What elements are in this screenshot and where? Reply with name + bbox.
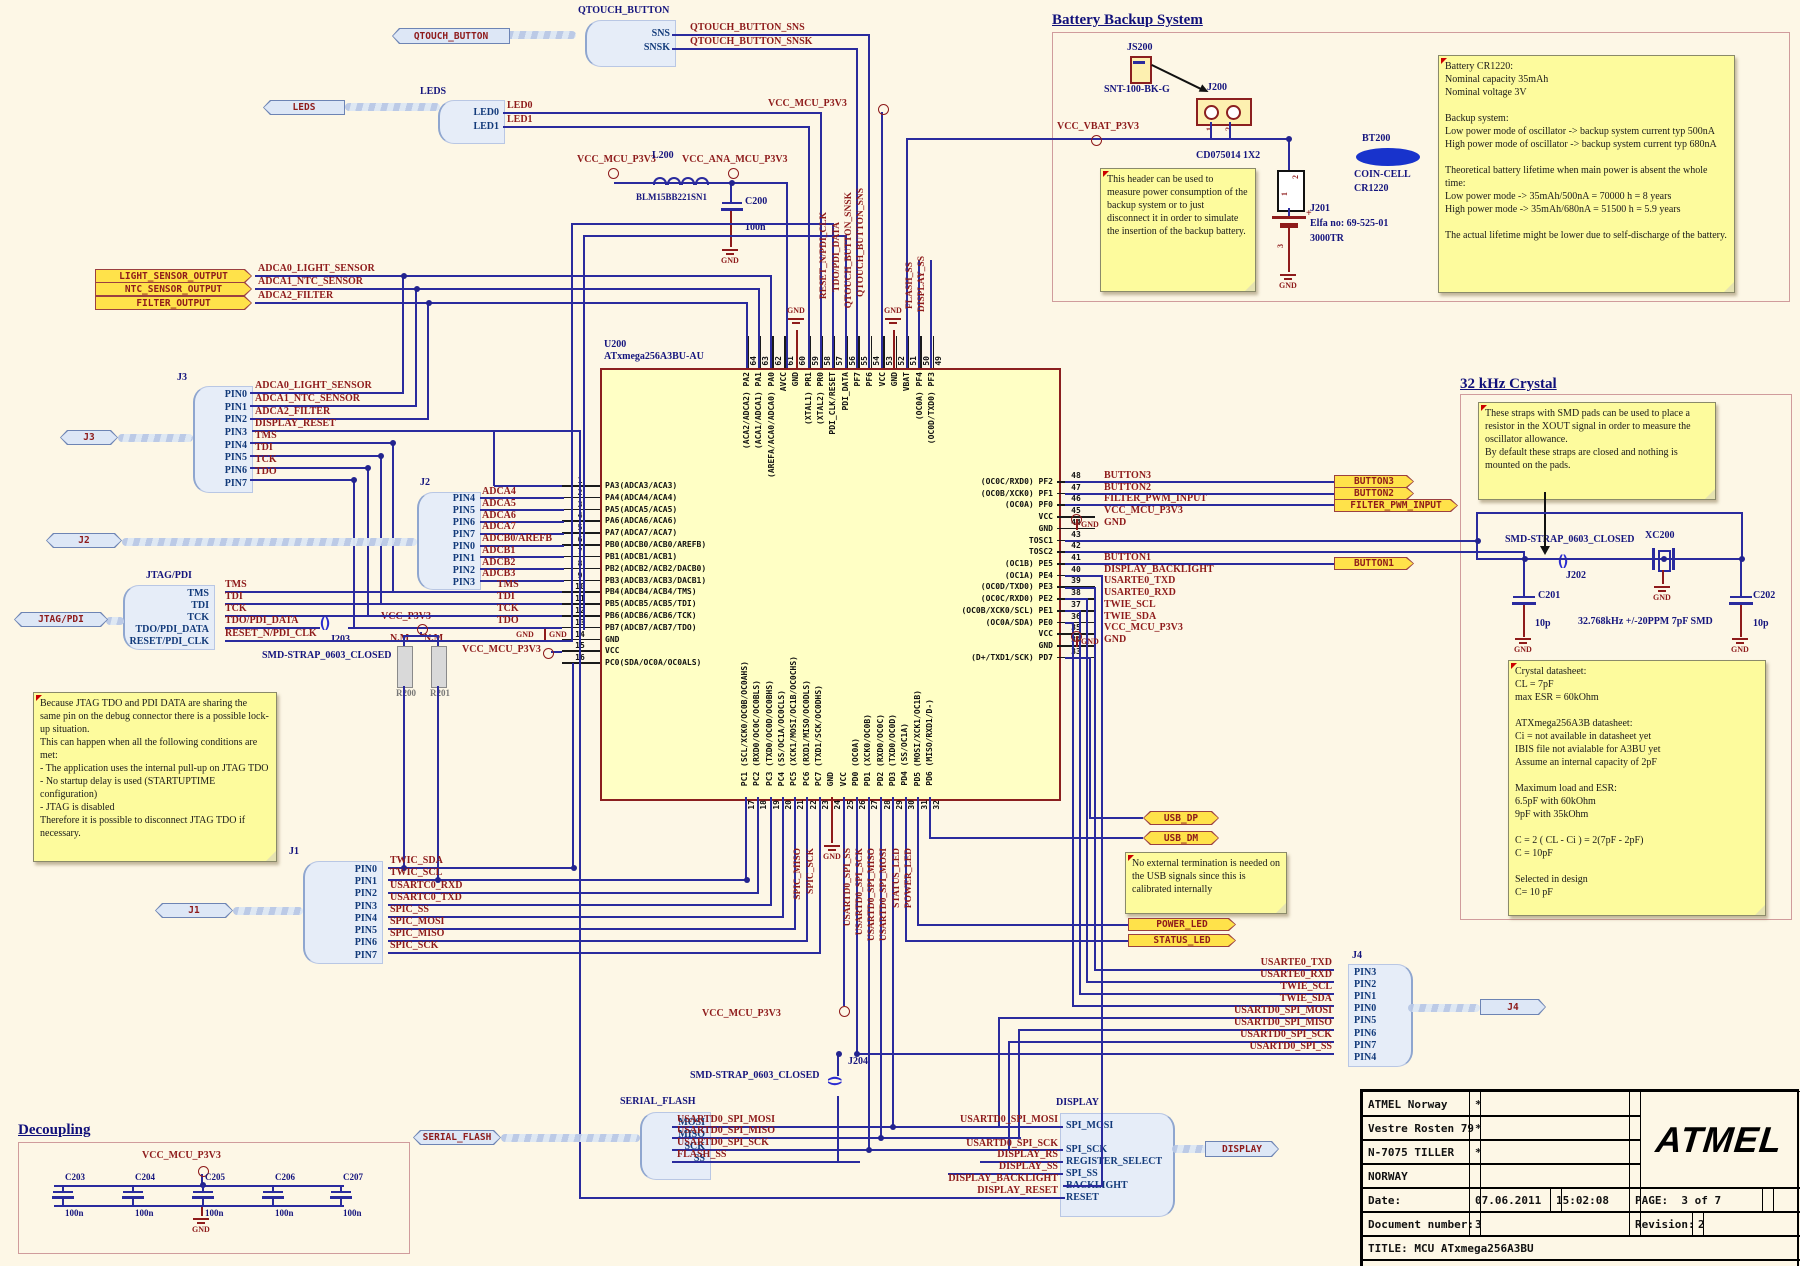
gnd-symbol [1654, 586, 1670, 588]
wire [929, 797, 931, 838]
wire [1079, 610, 1081, 994]
wire [571, 223, 573, 642]
c200-ref: C200 [745, 196, 767, 207]
power-label: VCC_VBAT_P3V3 [1057, 121, 1139, 132]
j202-part: SMD-STRAP_0603_CLOSED [1505, 534, 1634, 545]
j2-block[interactable]: PIN4PIN5PIN6PIN7PIN0PIN1PIN2PIN3 [417, 492, 481, 590]
wire [1065, 481, 1334, 483]
net-label-rotated: STATUS_LED [892, 848, 902, 908]
harness-bus [233, 907, 303, 915]
decoupling-cap[interactable] [123, 1191, 143, 1193]
power-label: VCC_MCU_P3V3 [142, 1150, 221, 1161]
wire [746, 302, 748, 368]
gnd-label: GND [823, 852, 841, 861]
power-port [878, 104, 889, 115]
mcu-pin[interactable]: 58 [816, 336, 828, 368]
wire [1740, 605, 1742, 637]
jtag-note: Because JTAG TDO and PDI DATA are sharin… [33, 692, 277, 862]
cap-ref: C205 [205, 1172, 225, 1182]
gnd-symbol [193, 1218, 209, 1220]
wire [672, 1161, 860, 1163]
mcu-pin[interactable]: 55 [853, 336, 865, 368]
filter-output-flag[interactable]: FILTER_OUTPUT [95, 296, 252, 310]
wire [1523, 605, 1525, 637]
gnd-label: GND [1081, 637, 1099, 646]
net-label: SPIC_SS [390, 904, 429, 915]
wire [998, 1017, 1000, 1127]
j3-harness-flag[interactable]: J3 [60, 430, 118, 445]
net-label-rotated: POWER_LED [904, 848, 914, 908]
net-label: TWIC_SCL [390, 867, 442, 878]
wire [388, 952, 821, 954]
j202-strap-icon[interactable]: () [1556, 552, 1566, 570]
wire [54, 1185, 344, 1187]
button1-flag[interactable]: BUTTON1 [1334, 557, 1414, 570]
gnd-label: GND [721, 256, 739, 265]
display-harness-flag[interactable]: DISPLAY [1205, 1141, 1279, 1157]
decoupling-cap[interactable] [331, 1191, 351, 1193]
display-block-title: DISPLAY [1056, 1097, 1099, 1108]
cap-val: 100n [135, 1208, 154, 1218]
gnd-symbol [1732, 638, 1748, 640]
wire [427, 302, 429, 420]
cap-lead [202, 1199, 204, 1206]
mcu-pin[interactable]: 5 PA7(ADCA7/ACA7) [562, 527, 892, 539]
decoupling-cap[interactable] [263, 1191, 283, 1193]
wire [1662, 570, 1664, 584]
net-label-rotated: USARTD0_SPI_SCK [855, 848, 865, 935]
gnd-label: GND [192, 1225, 210, 1234]
gnd-symbol [726, 253, 734, 255]
gnd-label: GND [1081, 520, 1099, 529]
net-label: ADCA0_LIGHT_SENSOR [258, 263, 375, 274]
gnd-symbol [1284, 278, 1292, 280]
j201-pin3: 3 [1276, 244, 1285, 248]
net-label: TMS [497, 579, 519, 590]
net-label: TDI [225, 591, 243, 602]
power-port [728, 168, 739, 179]
gnd-symbol [1519, 642, 1527, 644]
net-label: ADCA4 [482, 486, 516, 497]
wire [730, 211, 732, 247]
tb-time: 15:02:08 [1550, 1187, 1641, 1213]
net-label: ADCA1_NTC_SENSOR [255, 393, 360, 404]
wire [388, 928, 796, 930]
net-label: FLASH_SS [677, 1149, 726, 1160]
net-label: ADCB0/AREFB [482, 533, 552, 544]
gnd-symbol [792, 322, 800, 324]
net-label: USARTD0_SPI_SCK [858, 1138, 1058, 1149]
j203-part: SMD-STRAP_0603_CLOSED [262, 650, 391, 661]
junction-dot [836, 1051, 842, 1057]
wire [584, 235, 847, 237]
wire [929, 837, 1143, 839]
qtouch-block-title: QTOUCH_BUTTON [578, 5, 669, 16]
net-label: USARTD0_SPI_MOSI [677, 1114, 775, 1125]
wire [868, 34, 870, 368]
wire [917, 797, 919, 926]
j201-part: 3000TR [1310, 233, 1344, 244]
harness-bus [501, 1134, 640, 1142]
atmel-logo: ATMEL [1654, 1119, 1785, 1161]
power-port [608, 168, 619, 179]
title-block: ATMEL Norway * Vestre Rosten 79 * N-7075… [1360, 1089, 1799, 1266]
wire [1741, 512, 1743, 560]
j204-ref: J204 [848, 1056, 868, 1067]
net-label: DISPLAY_SS [858, 1161, 1058, 1172]
wire [1089, 817, 1143, 819]
wire [392, 442, 394, 593]
wire [1065, 493, 1334, 495]
wire [770, 797, 772, 906]
net-label-rotated: DISPLAY_SS [917, 256, 927, 312]
wire [906, 139, 908, 368]
display-block[interactable]: SPI_MOSISPI_SCKREGISTER_SELECTSPI_SSBACK… [1060, 1113, 1175, 1217]
j204-strap-icon[interactable]: () [826, 1074, 844, 1084]
gnd-symbol [197, 1222, 205, 1224]
net-label: TMS [255, 430, 277, 441]
cap-lead [272, 1199, 274, 1206]
junction-dot [378, 453, 384, 459]
bt200-coin-cell[interactable] [1356, 148, 1420, 166]
power-led-flag[interactable]: POWER_LED [1128, 918, 1236, 931]
gnd-label: GND [549, 630, 567, 639]
serial-flash-harness-flag[interactable]: SERIAL_FLASH [413, 1130, 501, 1145]
net-label: SPIC_SCK [390, 940, 438, 951]
junction-dot [854, 1051, 860, 1057]
leds-block[interactable]: LED0LED1 [438, 100, 505, 144]
j1-block-title: J1 [289, 846, 299, 857]
junction-dot [744, 877, 750, 883]
cap-val: 100n [275, 1208, 294, 1218]
wire [503, 126, 809, 128]
c202-cap[interactable] [1730, 596, 1752, 598]
wire [1065, 657, 1090, 659]
wire [1523, 559, 1525, 596]
power-port [1091, 135, 1102, 146]
j2-harness-flag[interactable]: J2 [46, 533, 122, 548]
wire [1065, 587, 1095, 589]
net-label: QTOUCH_BUTTON_SNSK [690, 36, 812, 47]
net-label-rotated: SPIC_SCK [806, 848, 816, 894]
leds-harness-flag[interactable]: LEDS [263, 100, 345, 115]
cap-lead [62, 1199, 64, 1206]
tb-date: 07.06.2011 [1469, 1187, 1562, 1213]
wire [380, 455, 382, 605]
net-label: TDI [255, 442, 273, 453]
mcu-pin[interactable]: 2 PA4(ADCA4/ACA4) [562, 492, 892, 504]
power-port [417, 624, 428, 635]
net-label: DISPLAY_RESET [255, 418, 336, 429]
junction-dot [729, 180, 735, 186]
junction-dot [390, 440, 396, 446]
wire [614, 182, 732, 184]
net-label: TCK [497, 603, 519, 614]
decoupling-cap[interactable] [193, 1191, 213, 1193]
net-label: TWIE_SDA [1154, 993, 1332, 1004]
j1-harness-flag[interactable]: J1 [155, 903, 233, 918]
wire [1072, 622, 1074, 1006]
jtag-harness-flag[interactable]: JTAG/PDI [14, 612, 108, 627]
wire [1065, 575, 1102, 577]
net-label: USARTD0_SPI_SCK [677, 1137, 769, 1148]
c200-cap[interactable] [722, 202, 742, 204]
js200-part: SNT-100-BK-G [1104, 84, 1170, 95]
cap-lead [132, 1199, 134, 1206]
gnd-label: GND [1653, 593, 1671, 602]
mcu-pin[interactable]: 57 [828, 336, 840, 368]
tb-rev: 2 [1692, 1211, 1800, 1237]
xc200-ref: XC200 [1645, 530, 1674, 541]
mcu-bottom-names: PC1 (SCL/XCK0/OC0B/OC0AHS)PC2 (RXD0/OC0C… [740, 560, 938, 791]
tb-addr1: Vestre Rosten 79 [1362, 1115, 1481, 1141]
wire [730, 184, 732, 202]
l200-ref: L200 [652, 150, 674, 161]
mcu-pin[interactable]: 3 PA5(ADCA5/ACA5) [562, 504, 892, 516]
harness-bus [1172, 1145, 1207, 1153]
net-label: USARTE0_TXD [1154, 957, 1332, 968]
junction-dot [1739, 556, 1745, 562]
j4-block-title: J4 [1352, 950, 1362, 961]
qtouch-harness-flag[interactable]: QTOUCH_BUTTON [392, 28, 510, 44]
wire [1065, 563, 1334, 565]
schematic-page: Battery Backup System 32 kHz Crystal Dec… [0, 0, 1800, 1266]
j204-part: SMD-STRAP_0603_CLOSED [690, 1070, 819, 1081]
light-sensor-output-flag[interactable]: LIGHT_SENSOR_OUTPUT [95, 269, 252, 283]
wire [831, 797, 833, 843]
battery-header-note: This header can be used to measure power… [1100, 168, 1256, 292]
junction-dot [571, 865, 577, 871]
wire [757, 797, 759, 894]
mcu-pin[interactable]: 52 [890, 336, 902, 368]
wire [905, 940, 1130, 942]
ntc-sensor-output-flag[interactable]: NTC_SENSOR_OUTPUT [95, 282, 252, 296]
net-label: USARTD0_SPI_MOSI [858, 1114, 1058, 1125]
wire [493, 430, 495, 486]
resistor-r201[interactable] [431, 646, 447, 688]
wire [480, 580, 564, 582]
harness-bus [345, 103, 440, 111]
gnd-symbol [544, 629, 546, 640]
wire [437, 636, 439, 646]
serial-flash-block-title: SERIAL_FLASH [620, 1096, 696, 1107]
wire [255, 302, 748, 304]
j201-ref: J201 [1310, 203, 1330, 214]
l200-part: BLM15BB221SN1 [636, 192, 707, 202]
wire [1740, 559, 1742, 596]
net-label: SPIC_MISO [390, 928, 444, 939]
junction-dot [1475, 538, 1481, 544]
power-label: VCC_MCU_P3V3 [577, 154, 656, 165]
net-label: USARTD0_SPI_MOSI [1154, 1005, 1332, 1016]
cap-ref: C207 [343, 1172, 363, 1182]
net-label-rotated: SPIC_MISO [793, 848, 803, 900]
gnd-symbol [722, 249, 738, 251]
wire [796, 330, 798, 368]
js200-ref: JS200 [1127, 42, 1153, 53]
power-label: VCC_MCU_P3V3 [702, 1008, 781, 1019]
net-label: TDI [497, 591, 515, 602]
mcu-pin[interactable]: 62 [767, 336, 779, 368]
cap-val: 100n [65, 1208, 84, 1218]
decoupling-cap[interactable] [53, 1191, 73, 1193]
wire [837, 1096, 839, 1162]
c201-ref: C201 [1538, 590, 1560, 601]
c201-val: 10p [1535, 618, 1551, 629]
wire [1008, 1041, 1010, 1150]
status-led-flag[interactable]: STATUS_LED [1128, 934, 1236, 947]
net-label: ADCA7 [482, 521, 516, 532]
net-label: USARTC0_RXD [390, 880, 462, 891]
wire [808, 126, 810, 368]
j4-harness-flag[interactable]: J4 [1480, 999, 1546, 1015]
power-port [839, 1006, 850, 1017]
mcu-pin[interactable]: 64 [742, 336, 754, 368]
crystal-section-title: 32 kHz Crystal [1460, 376, 1557, 393]
wire [786, 182, 788, 368]
net-label: RESET_N/PDI_CLK [225, 628, 317, 639]
note-arrow-head [1540, 546, 1550, 555]
usb-dm-flag[interactable]: USB_DM [1143, 831, 1219, 845]
wire [758, 288, 760, 368]
wire [1065, 540, 1477, 542]
mcu-part: ATxmega256A3BU-AU [604, 351, 704, 362]
wire [579, 1197, 1065, 1199]
j200-header[interactable] [1196, 98, 1252, 126]
net-label: SPIC_MOSI [390, 916, 444, 927]
gnd-label: GND [1279, 281, 1297, 290]
js200-strap[interactable] [1130, 56, 1152, 84]
wire [1065, 598, 1087, 600]
mcu-pin[interactable]: 49 [927, 336, 939, 368]
junction-dot [1286, 136, 1292, 142]
net-label-rotated: RESET_N/PDI_CLK [819, 212, 829, 299]
wire [1288, 208, 1290, 216]
net-label: ADCB1 [482, 545, 515, 556]
wire [893, 330, 895, 368]
leds-block-title: LEDS [420, 86, 446, 97]
tb-cell: * [1469, 1115, 1641, 1141]
tb-company: ATMEL Norway [1362, 1091, 1481, 1117]
power-port [543, 648, 554, 659]
wire [353, 479, 355, 629]
gnd-symbol [788, 318, 804, 320]
battery-section-title: Battery Backup System [1052, 12, 1203, 29]
wire [672, 48, 858, 50]
wire [1065, 551, 1524, 553]
wire [1229, 122, 1231, 139]
wire [402, 275, 404, 394]
tb-doc: 3 [1469, 1211, 1641, 1237]
net-label: USARTC0_TXD [390, 892, 462, 903]
jtag-block[interactable]: TMSTDITCKTDO/PDI_DATARESET/PDI_CLK [123, 585, 215, 650]
net-label: TWIC_SDA [390, 855, 443, 866]
junction-dot [1661, 556, 1667, 562]
wire [892, 797, 894, 1128]
c202-ref: C202 [1753, 590, 1775, 601]
j1-block[interactable]: PIN0PIN1PIN2PIN3PIN4PIN5PIN6PIN7 [303, 861, 383, 964]
net-label: TWIE_SCL [1154, 981, 1332, 992]
wire [572, 663, 574, 869]
wire [819, 797, 821, 954]
c200-cap [721, 208, 743, 211]
qtouch-block[interactable]: SNSSNSK [585, 20, 676, 67]
mcu-pin[interactable]: GND 44 GND [860, 523, 1160, 535]
wire [225, 640, 573, 642]
gnd-symbol [1076, 636, 1078, 647]
mcu-pin[interactable]: 63 [754, 336, 766, 368]
r201-ref: R201 [430, 688, 450, 698]
net-label: USARTD0_SPI_MISO [677, 1125, 775, 1136]
wire [770, 275, 772, 368]
mcu-pin[interactable]: 4 PA6(ADCA6/ACA6) [562, 515, 892, 527]
wire [782, 797, 784, 918]
filter-pwm-input-flag[interactable]: FILTER_PWM_INPUT [1334, 499, 1458, 512]
power-label: VCC_MCU_P3V3 [768, 98, 847, 109]
gnd-symbol [1280, 274, 1296, 276]
mcu-pin[interactable]: 51 [902, 336, 914, 368]
net-label: ADCA5 [482, 498, 516, 509]
crystal-datasheet-note: Crystal datasheet: CL = 7pF max ESR = 60… [1508, 660, 1766, 916]
net-label: DISPLAY_RESET [858, 1185, 1058, 1196]
junction-dot [351, 477, 357, 483]
tb-file: XMEGA-A3BU_XPLAINED_MCU.SchDoc [1362, 1259, 1800, 1266]
gnd-label: GND [787, 306, 805, 315]
junction-dot [1522, 556, 1528, 562]
net-label: ADCB2 [482, 557, 515, 568]
wire [1288, 138, 1290, 170]
wire [388, 916, 784, 918]
wire [388, 940, 808, 942]
net-label: ADCA1_NTC_SENSOR [258, 276, 363, 287]
wire [503, 112, 821, 114]
wire [930, 260, 932, 368]
junction-dot [414, 286, 420, 292]
net-label: USARTD0_SPI_MISO [1154, 1017, 1332, 1028]
wire [1063, 1185, 1103, 1187]
cap-val: 100n [205, 1208, 224, 1218]
tb-page: PAGE: 3 of 7 [1629, 1187, 1774, 1213]
power-label: VCC_ANA_MCU_P3V3 [682, 154, 788, 165]
wire [1065, 504, 1334, 506]
wire [917, 924, 1130, 926]
net-label-rotated: FLASH_SS [905, 262, 915, 309]
mcu-pin[interactable]: 6 PB0(ADCB0/ACB0/AREFB) [562, 539, 892, 551]
c202-val: 10p [1753, 618, 1769, 629]
mcu-pin[interactable]: 53 [878, 336, 890, 368]
xc200-spec: 32.768kHz +/-20PPM 7pF SMD [1578, 616, 1713, 627]
wire [837, 1054, 839, 1076]
net-label-rotated: USARTD0_SPI_MOSI [879, 848, 889, 941]
c201-cap[interactable] [1513, 596, 1535, 598]
wire [54, 1205, 344, 1207]
battery-note: Battery CR1220: Nominal capacity 35mAh N… [1438, 55, 1735, 293]
j3-block[interactable]: PIN0PIN1PIN2PIN3PIN4PIN5PIN6PIN7 [193, 386, 253, 493]
wire [1288, 228, 1290, 272]
j4-block[interactable]: PIN3PIN2PIN1PIN0PIN5PIN6PIN7PIN4 [1348, 964, 1413, 1067]
wire [1089, 657, 1091, 818]
mcu-pin[interactable]: 50 [915, 336, 927, 368]
gnd-label: GND [1731, 645, 1749, 654]
mcu-top-names: (ACA2/ADCA2) PA2(ACA1/ADCA1) PA1(AREFA/A… [742, 372, 940, 483]
tb-cell [1469, 1163, 1641, 1189]
harness-bus [1408, 1004, 1480, 1012]
gnd-symbol [1515, 638, 1531, 640]
usb-dp-flag[interactable]: USB_DP [1143, 811, 1219, 825]
resistor-r200[interactable] [397, 646, 413, 688]
cap-ref: C204 [135, 1172, 155, 1182]
cd075014-block[interactable]: 1 2 [1277, 170, 1305, 212]
